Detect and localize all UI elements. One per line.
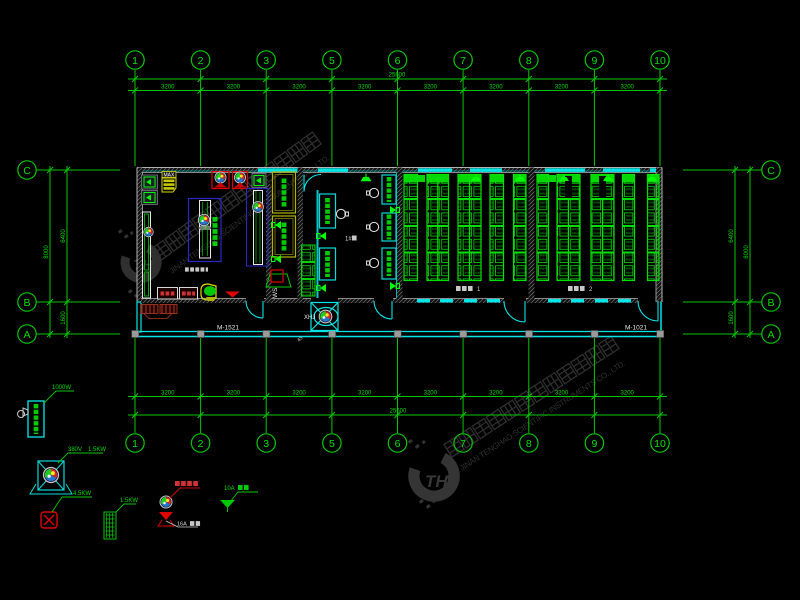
svg-text:3200: 3200: [424, 85, 438, 91]
svg-text:3200: 3200: [555, 391, 569, 397]
svg-text:3200: 3200: [489, 85, 503, 91]
svg-text:1: 1: [132, 55, 138, 67]
svg-text:A: A: [23, 329, 30, 341]
svg-text:WS: WS: [272, 287, 279, 298]
svg-text:3200: 3200: [227, 85, 241, 91]
svg-text:2: 2: [198, 438, 204, 450]
svg-text:5: 5: [329, 55, 335, 67]
svg-text:9: 9: [591, 55, 597, 67]
svg-text:1600: 1600: [61, 311, 67, 325]
svg-text:C: C: [767, 165, 775, 177]
svg-text:3200: 3200: [621, 85, 635, 91]
svg-text:25600: 25600: [390, 409, 407, 415]
svg-text:M-1021: M-1021: [625, 325, 647, 332]
svg-text:8000: 8000: [44, 245, 50, 259]
svg-text:8: 8: [526, 438, 532, 450]
svg-text:1#: 1#: [345, 237, 352, 243]
svg-text:3200: 3200: [292, 391, 306, 397]
svg-text:9: 9: [591, 438, 597, 450]
svg-text:1600: 1600: [729, 311, 735, 325]
svg-text:C: C: [23, 165, 31, 177]
svg-text:25600: 25600: [389, 73, 406, 79]
svg-text:4.5KW: 4.5KW: [73, 491, 91, 497]
svg-text:XHJ: XHJ: [304, 315, 315, 321]
svg-text:6: 6: [395, 55, 401, 67]
svg-text:3200: 3200: [227, 391, 241, 397]
svg-text:16A: 16A: [177, 522, 187, 528]
svg-text:3: 3: [263, 438, 269, 450]
svg-text:1.5KW: 1.5KW: [120, 498, 138, 504]
svg-text:M-1521: M-1521: [217, 325, 239, 332]
svg-text:3200: 3200: [489, 391, 503, 397]
svg-text:7: 7: [460, 438, 466, 450]
svg-text:8000: 8000: [744, 245, 750, 259]
svg-text:3200: 3200: [292, 85, 306, 91]
svg-text:380V: 380V: [68, 447, 82, 453]
svg-text:A: A: [767, 329, 774, 341]
svg-text:7: 7: [460, 55, 466, 67]
svg-text:5: 5: [329, 438, 335, 450]
svg-text:3200: 3200: [621, 391, 635, 397]
svg-text:3200: 3200: [161, 391, 175, 397]
svg-text:3200: 3200: [358, 391, 372, 397]
svg-text:B: B: [23, 297, 30, 309]
svg-text:8: 8: [526, 55, 532, 67]
svg-text:10A: 10A: [224, 486, 235, 492]
svg-text:1: 1: [132, 438, 138, 450]
svg-text:6: 6: [395, 438, 401, 450]
svg-text:2: 2: [198, 55, 204, 67]
svg-text:3200: 3200: [161, 85, 175, 91]
svg-text:TH: TH: [425, 472, 448, 491]
svg-text:1.5KW: 1.5KW: [88, 447, 106, 453]
svg-text:6400: 6400: [729, 229, 735, 243]
svg-text:3200: 3200: [358, 85, 372, 91]
svg-text:10: 10: [654, 438, 666, 450]
svg-text:3200: 3200: [555, 85, 569, 91]
svg-text:1000W: 1000W: [52, 385, 71, 391]
svg-text:10: 10: [654, 55, 666, 67]
svg-text:3: 3: [263, 55, 269, 67]
svg-text:B: B: [767, 297, 774, 309]
svg-text:3200: 3200: [424, 391, 438, 397]
svg-text:6400: 6400: [61, 229, 67, 243]
